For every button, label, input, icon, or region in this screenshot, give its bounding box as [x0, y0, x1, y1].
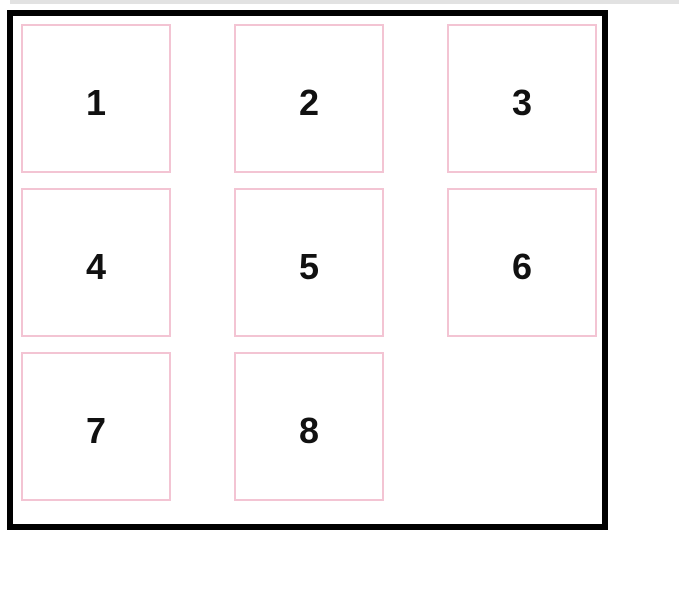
grid-item-label: 8: [299, 413, 319, 449]
grid-item-label: 5: [299, 249, 319, 285]
grid-item-4: 4: [21, 188, 171, 337]
grid-container: 1 2 3 4 5 6 7 8: [7, 10, 608, 530]
grid-item-label: 2: [299, 85, 319, 121]
grid-item-label: 7: [86, 413, 106, 449]
grid-item-8: 8: [234, 352, 384, 501]
grid-item-2: 2: [234, 24, 384, 173]
grid-item-7: 7: [21, 352, 171, 501]
grid-item-1: 1: [21, 24, 171, 173]
grid-item-label: 6: [512, 249, 532, 285]
window-edge-strip: [10, 0, 679, 4]
grid-item-6: 6: [447, 188, 597, 337]
grid-item-5: 5: [234, 188, 384, 337]
grid-item-label: 4: [86, 249, 106, 285]
grid-item-label: 1: [86, 85, 106, 121]
grid-item-label: 3: [512, 85, 532, 121]
grid-item-3: 3: [447, 24, 597, 173]
